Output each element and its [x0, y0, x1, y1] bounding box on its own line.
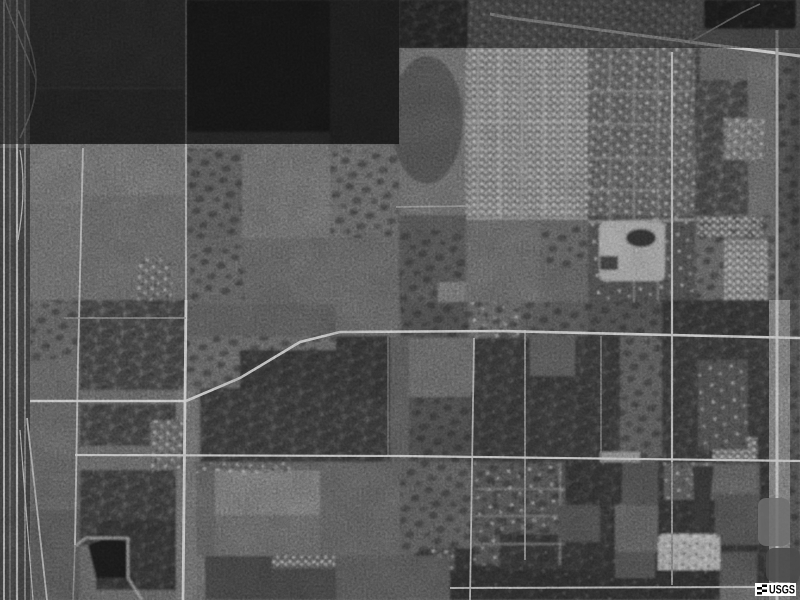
svg-text:USGS: USGS	[769, 585, 795, 597]
